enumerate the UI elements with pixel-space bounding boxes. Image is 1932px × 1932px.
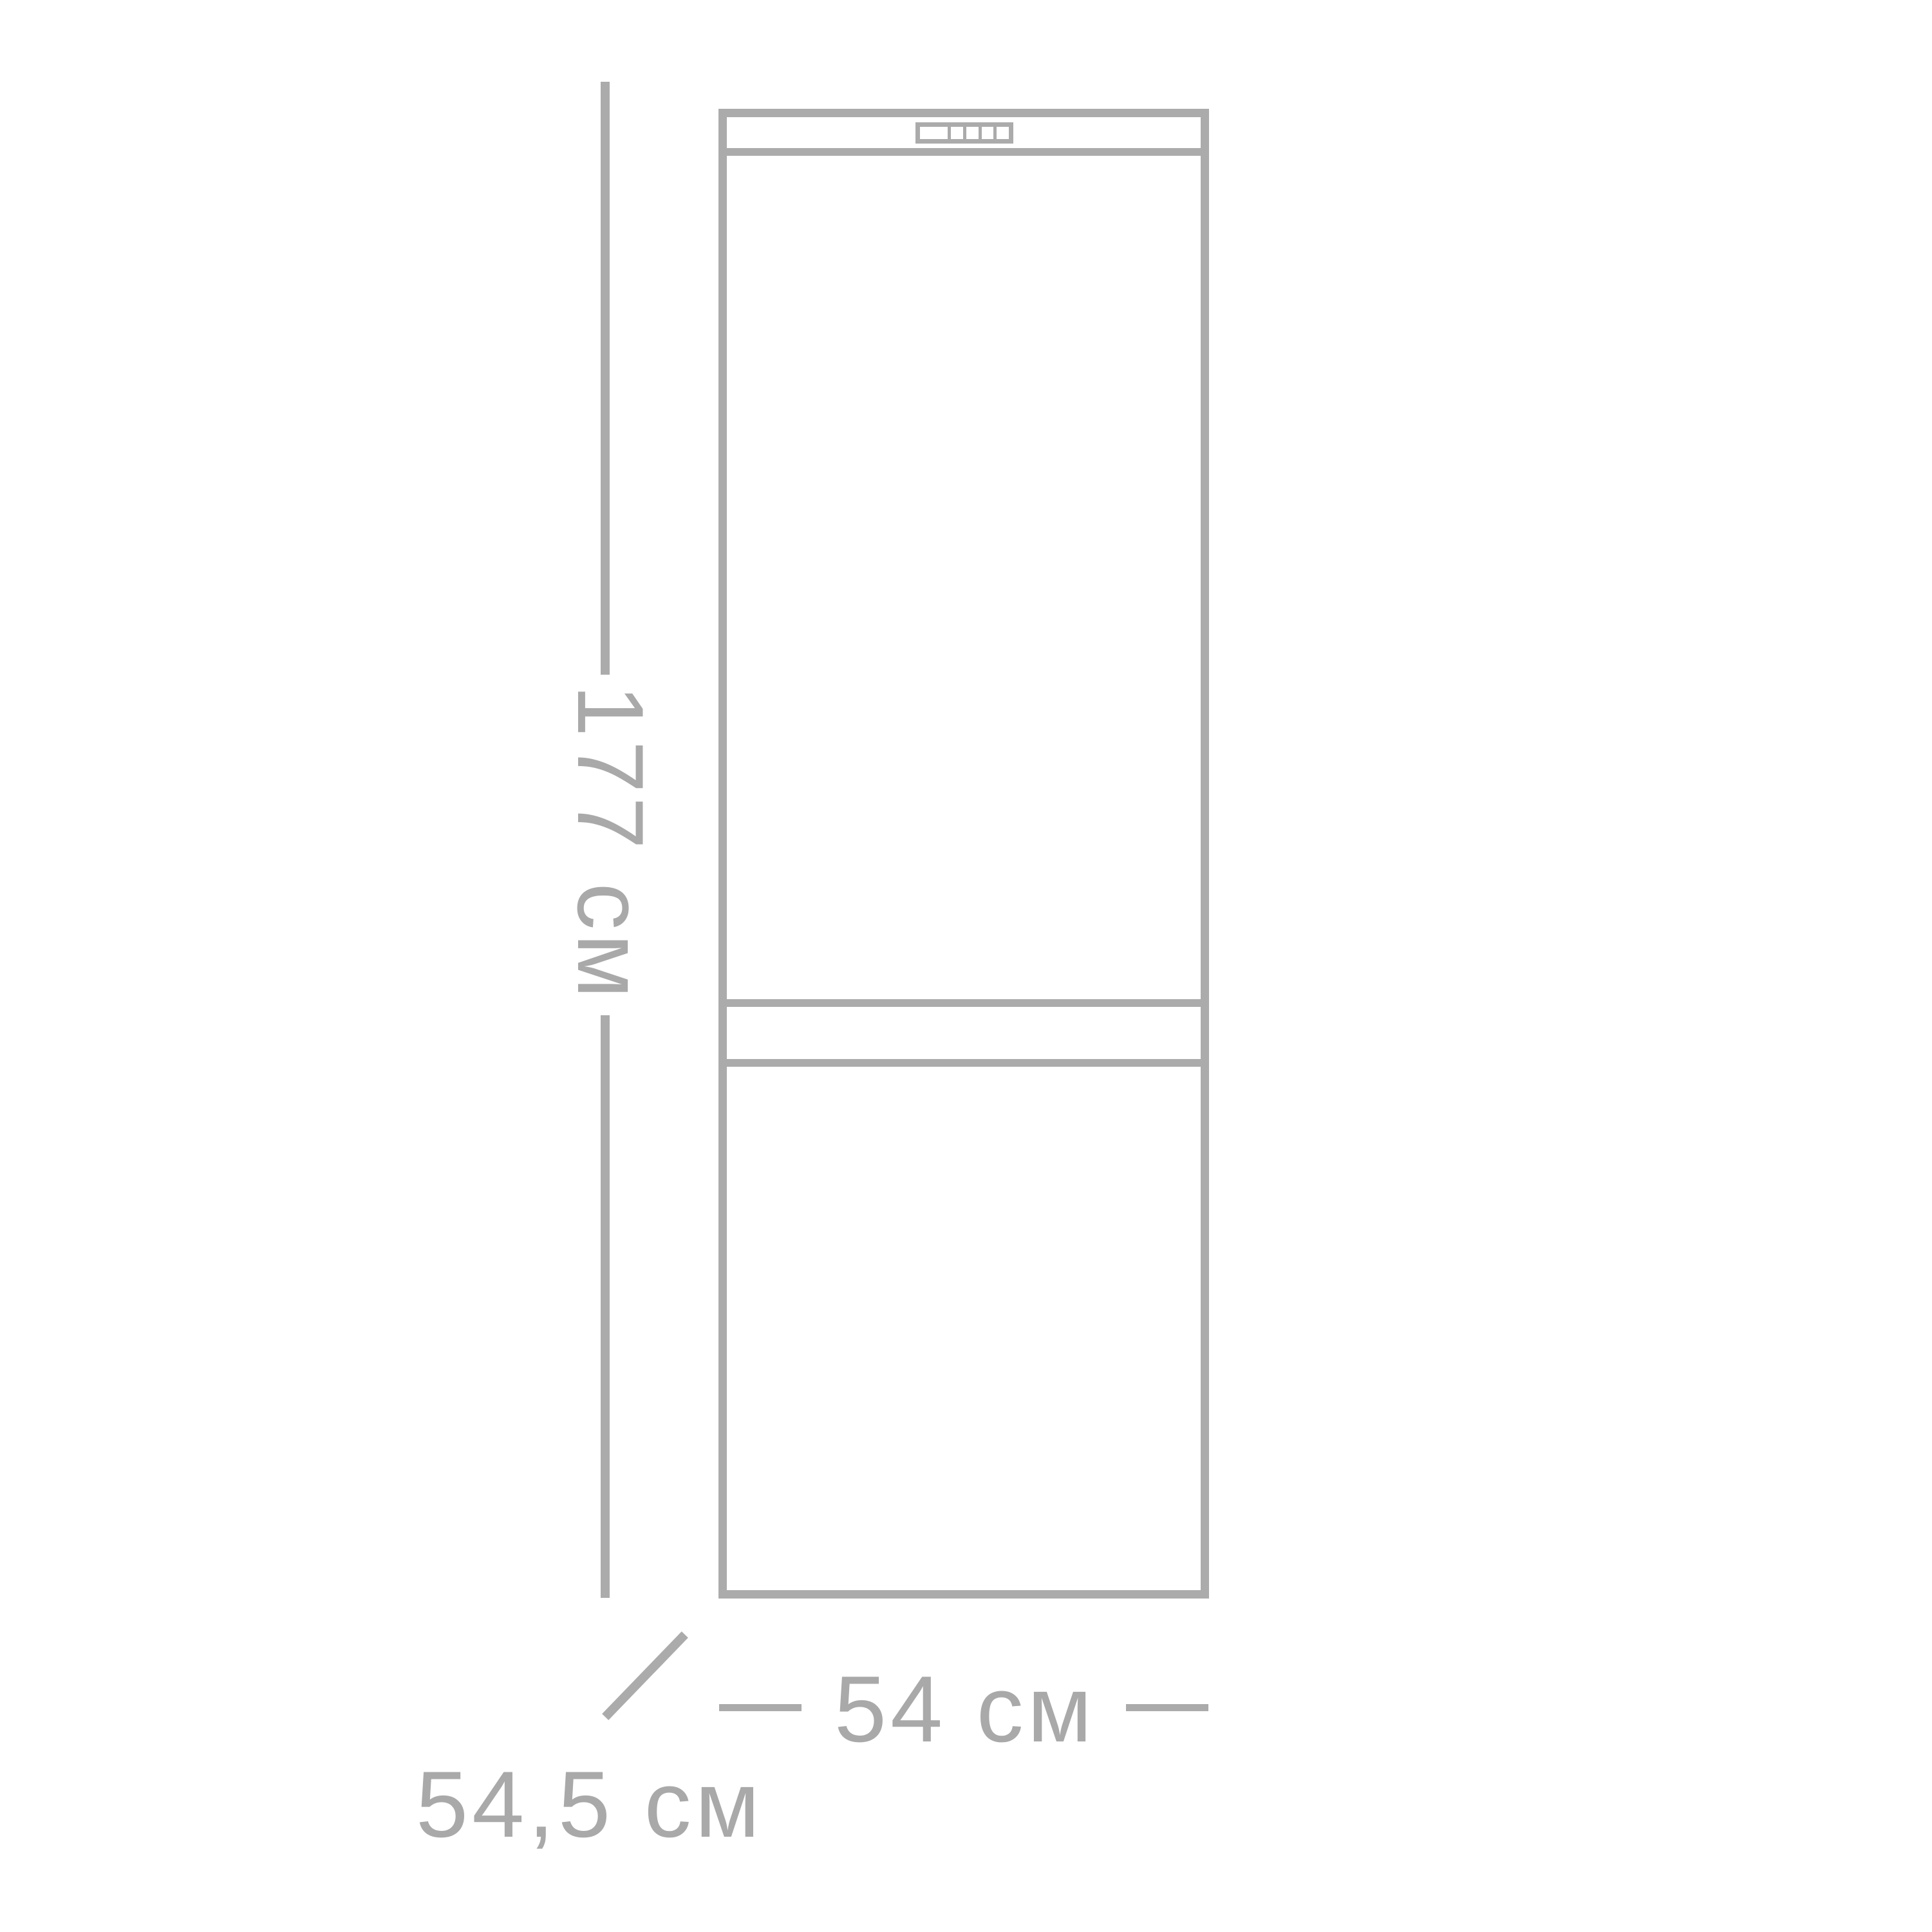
control-panel-display-cell xyxy=(920,127,948,139)
width-dimension-dash-left xyxy=(719,1704,802,1711)
control-panel-icon xyxy=(915,122,1013,144)
control-panel-button-cell xyxy=(951,127,963,139)
door-separator-lower-line xyxy=(727,1059,1201,1067)
depth-dimension-label: 54,5 см xyxy=(416,1758,764,1852)
height-dimension-label: 177 см xyxy=(563,684,657,1002)
door-separator-upper-line xyxy=(727,999,1201,1007)
width-dimension-label: 54 см xyxy=(834,1662,1096,1756)
control-panel-button-cell xyxy=(982,127,994,139)
width-dimension-dash-right xyxy=(1126,1704,1208,1711)
control-panel-button-cell xyxy=(997,127,1009,139)
fridge-outline xyxy=(718,109,1209,1599)
fridge-top-band-line xyxy=(727,148,1201,156)
height-dimension-line-upper xyxy=(601,82,610,675)
control-panel-button-cell xyxy=(966,127,979,139)
dimension-diagram: 177 см 54 см 54,5 см xyxy=(0,0,1932,1932)
depth-dimension-diagonal-line xyxy=(602,1631,688,1720)
height-dimension-line-lower xyxy=(601,1015,610,1598)
